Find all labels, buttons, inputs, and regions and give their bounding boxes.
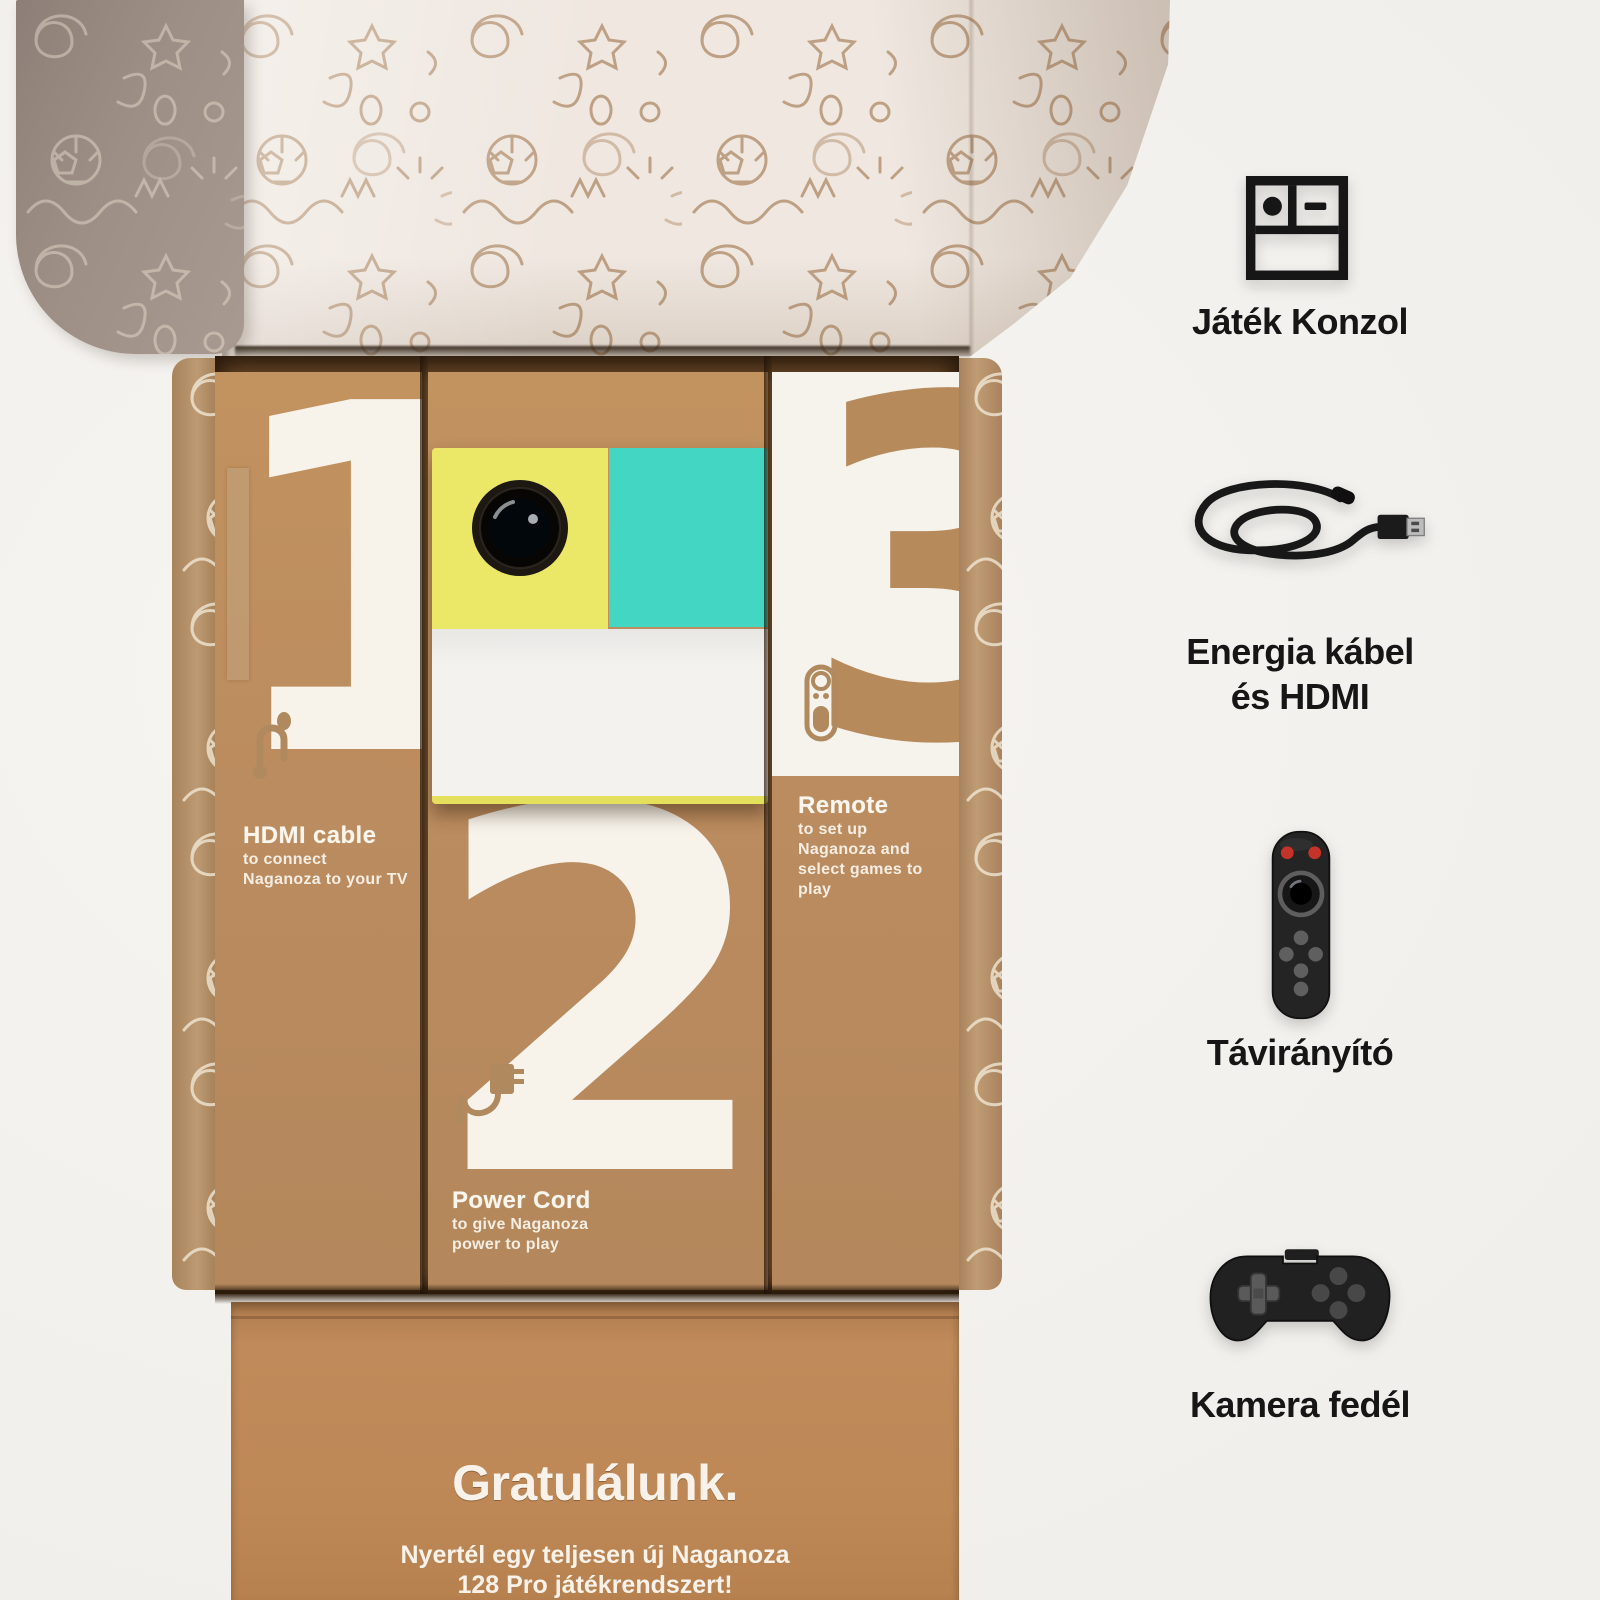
game-console-device <box>432 448 768 804</box>
compartment-desc-line: to give Naganoza <box>452 1215 752 1235</box>
edge-doodle-pattern <box>172 358 218 1290</box>
compartment-desc-line: select games to play <box>798 860 958 900</box>
label-line: Kamera fedél <box>1190 1384 1410 1425</box>
gamepad-icon <box>1206 1242 1394 1354</box>
box-lid-flap <box>16 0 244 354</box>
camera-lens <box>471 479 569 577</box>
compartment-3-remote: 3 Remote to set up Naganoza and select g… <box>772 372 959 1290</box>
label-line: Távirányító <box>1207 1032 1394 1073</box>
compartment-title: Remote <box>798 792 958 820</box>
box-edge-left <box>172 358 218 1290</box>
compartment-desc-line: Naganoza to your TV <box>243 870 413 890</box>
hdmi-cable-icon <box>247 708 297 780</box>
device-white-module <box>432 629 768 796</box>
compartment-3-text: Remote to set up Naganoza and select gam… <box>798 792 958 900</box>
label-power-hdmi-cable: Energia kábel és HDMI <box>1140 629 1460 719</box>
remote-outline-icon <box>804 664 838 742</box>
label-line: és HDMI <box>1140 674 1460 719</box>
compartment-2-power-cord: 2 <box>428 372 768 1290</box>
label-camera-cover: Kamera fedél <box>1140 1382 1460 1427</box>
compartment-3-white-panel: 3 <box>772 372 959 776</box>
compartment-1-hdmi-cable: 1 HDMI cable to connect Naganoza to your… <box>215 372 422 1290</box>
compartment-desc-line: power to play <box>452 1235 752 1255</box>
label-remote-control: Távirányító <box>1140 1030 1460 1075</box>
remote-control-photo <box>1269 828 1333 1022</box>
compartment-title: Power Cord <box>452 1187 752 1215</box>
game-console-icon <box>1245 174 1349 282</box>
compartment-1-text: HDMI cable to connect Naganoza to your T… <box>243 822 413 890</box>
compartment-number: 2 <box>428 798 768 1194</box>
box-edge-right <box>956 358 1002 1290</box>
unboxing-scene: 1 HDMI cable to connect Naganoza to your… <box>0 0 1600 1600</box>
power-adapter-icon <box>450 1058 524 1130</box>
edge-doodle-pattern <box>956 358 1002 1290</box>
box-front-panel: Gratulálunk. Nyertél egy teljesen új Nag… <box>231 1302 959 1600</box>
box-front-seam <box>215 1284 959 1304</box>
congratulations-heading: Gratulálunk. <box>231 1454 959 1512</box>
lid-shading <box>222 0 1170 356</box>
compartment-title: HDMI cable <box>243 822 413 850</box>
label-game-console: Játék Konzol <box>1140 299 1460 344</box>
device-yellow-edge <box>432 796 768 804</box>
box-lid <box>222 0 1170 356</box>
compartment-desc-line: to set up <box>798 820 958 840</box>
flap-doodle-pattern <box>16 0 244 354</box>
subtitle-line: Nyertél egy teljesen új Naganoza <box>231 1540 959 1570</box>
subtitle-line: 128 Pro játékrendszert! <box>231 1570 959 1600</box>
power-hdmi-cable-photo <box>1170 474 1426 598</box>
kraft-tape-strip <box>227 468 249 680</box>
compartment-seam <box>764 356 772 1294</box>
congratulations-subtitle: Nyertél egy teljesen új Naganoza 128 Pro… <box>231 1540 959 1600</box>
compartment-desc-line: to connect <box>243 850 413 870</box>
box-body: 1 HDMI cable to connect Naganoza to your… <box>172 356 1002 1294</box>
compartment-seam <box>420 356 428 1294</box>
label-line: Játék Konzol <box>1192 301 1408 342</box>
box-interior: 1 HDMI cable to connect Naganoza to your… <box>215 356 959 1294</box>
compartment-2-text: Power Cord to give Naganoza power to pla… <box>452 1187 752 1255</box>
device-teal-module <box>609 448 768 627</box>
compartment-desc-line: Naganoza and <box>798 840 958 860</box>
label-line: Energia kábel <box>1140 629 1460 674</box>
